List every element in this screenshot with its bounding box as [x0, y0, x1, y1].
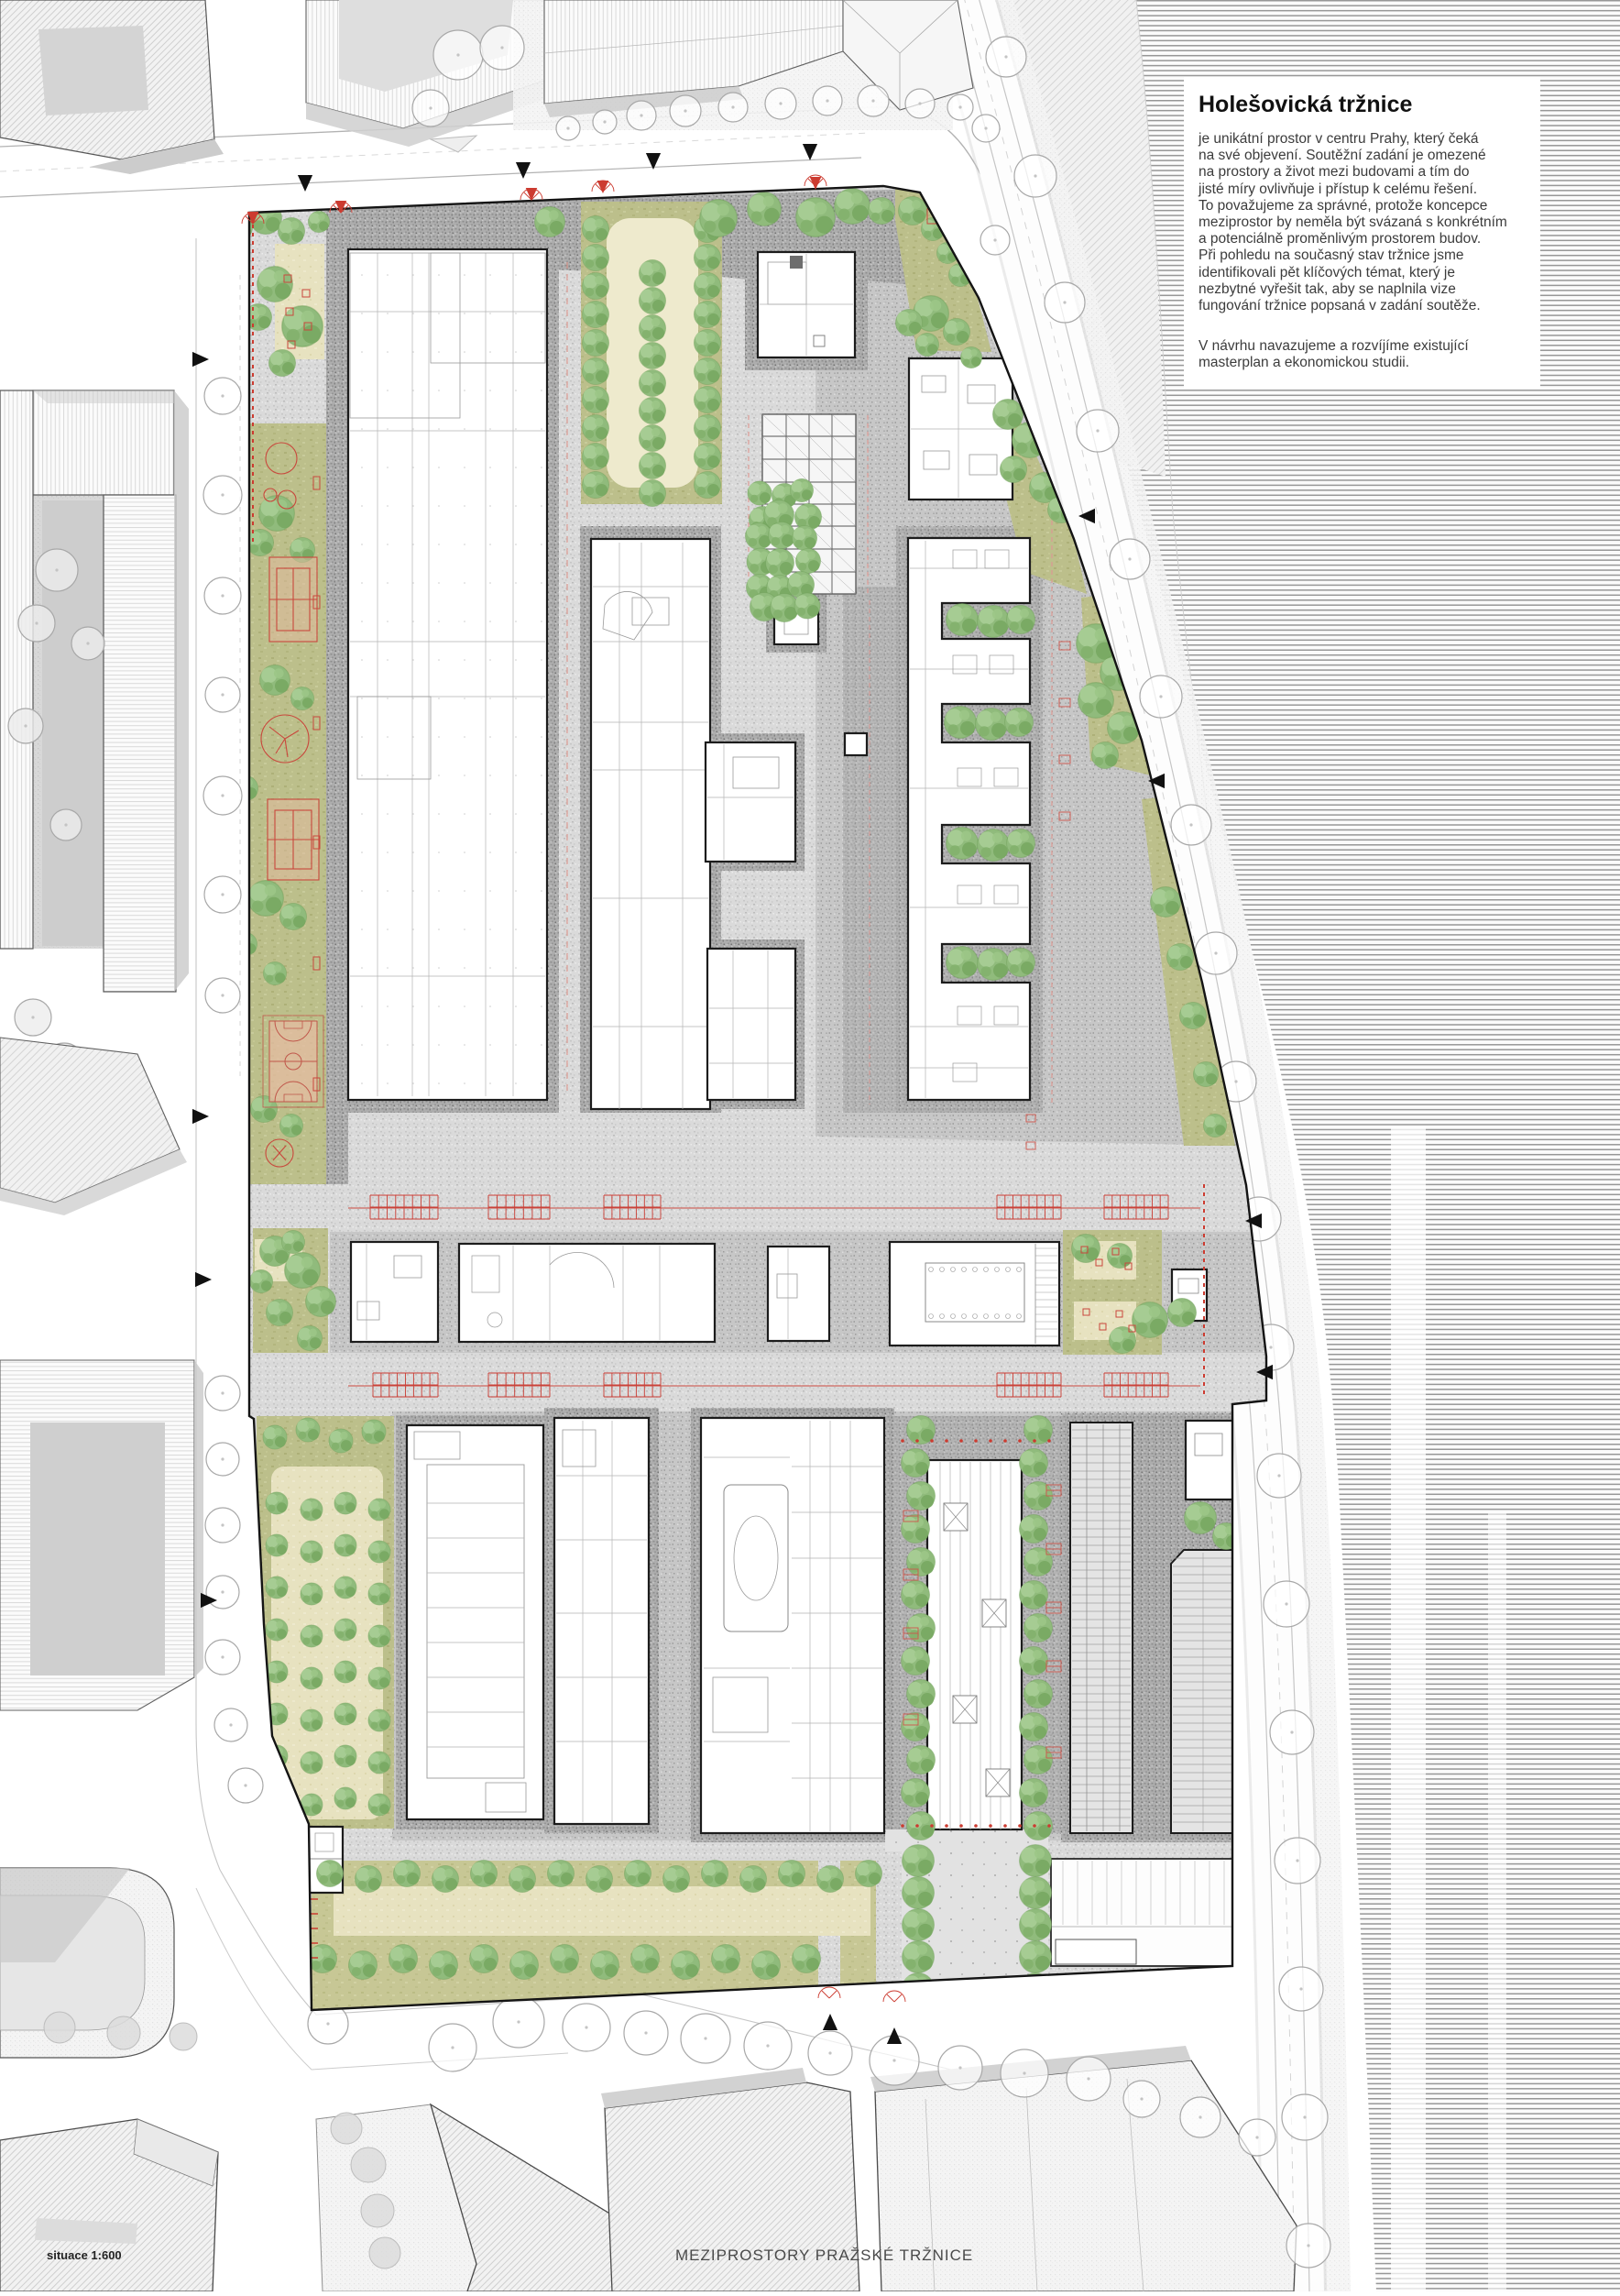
svg-text:To považujeme za správné, prot: To považujeme za správné, protože koncep…: [1199, 198, 1487, 214]
svg-text:situace 1:600: situace 1:600: [47, 2248, 122, 2262]
svg-text:fungování tržnice popsaná v za: fungování tržnice popsaná v zadání soutě…: [1199, 298, 1481, 313]
svg-text:nezbytné vyřešit tak, aby se n: nezbytné vyřešit tak, aby se naplnila vi…: [1199, 281, 1456, 297]
svg-text:jisté míry ovlivňuje i přístup: jisté míry ovlivňuje i přístup k celému …: [1198, 181, 1477, 197]
svg-text:masterplan a ekonomickou studi: masterplan a ekonomickou studii.: [1199, 355, 1409, 370]
svg-text:Při pohledu na současný stav t: Při pohledu na současný stav tržnice jsm…: [1199, 247, 1463, 263]
svg-text:identifikovali pět klíčových t: identifikovali pět klíčových témat, kter…: [1199, 265, 1455, 280]
svg-text:je unikátní prostor v centru P: je unikátní prostor v centru Prahy, kter…: [1198, 131, 1479, 147]
svg-text:meziprostor by neměla být sváz: meziprostor by neměla být svázaná s konk…: [1199, 214, 1507, 230]
svg-text:na prostory a život mezi budov: na prostory a život mezi budovami a tím …: [1199, 164, 1470, 180]
svg-text:MEZIPROSTORY PRAŽSKÉ TRŽNICE: MEZIPROSTORY PRAŽSKÉ TRŽNICE: [675, 2247, 973, 2264]
svg-text:Holešovická tržnice: Holešovická tržnice: [1199, 92, 1413, 117]
svg-text:a potenciálně proměnlivým pros: a potenciálně proměnlivým prostorem budo…: [1199, 231, 1481, 247]
svg-text:V návrhu navazujeme a rozvíjím: V návrhu navazujeme a rozvíjíme existují…: [1199, 338, 1469, 354]
svg-text:na své objevení. Soutěžní zadá: na své objevení. Soutěžní zadání je omez…: [1199, 148, 1486, 163]
